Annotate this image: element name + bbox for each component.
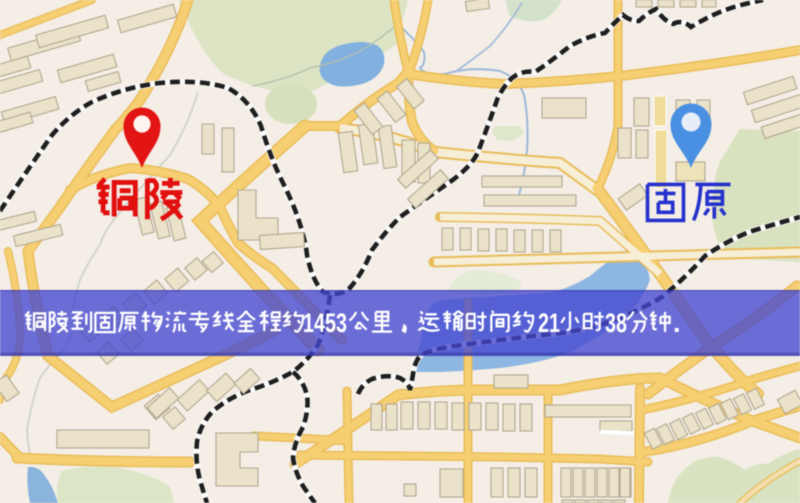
svg-text:21: 21 — [538, 308, 560, 338]
svg-text:.: . — [673, 308, 681, 338]
svg-text:38: 38 — [605, 308, 627, 338]
svg-text:1453: 1453 — [303, 308, 347, 338]
